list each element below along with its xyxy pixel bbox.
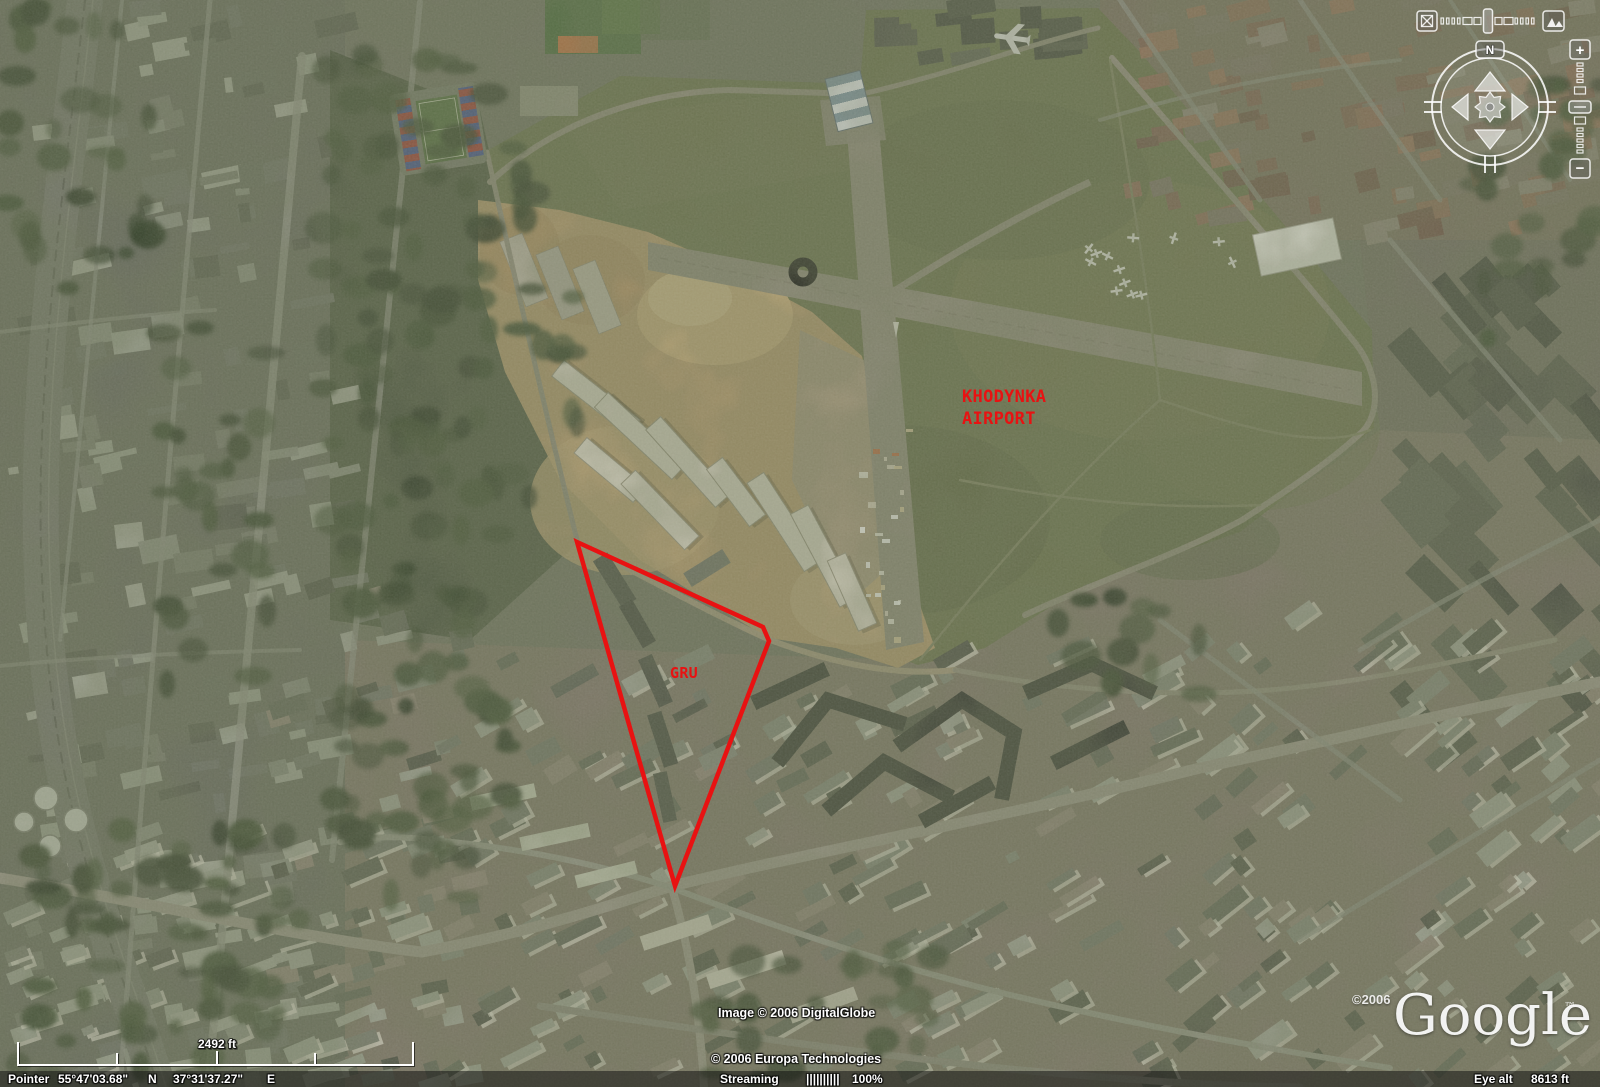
eye-altitude-value: 8613 ft — [1531, 1071, 1569, 1087]
streaming-percent: 100% — [852, 1071, 883, 1087]
pointer-latitude: 55°47'03.68" — [58, 1071, 128, 1087]
status-bar: Pointer 55°47'03.68" N 37°31'37.27" E St… — [0, 1071, 1600, 1087]
google-earth-viewport: KHODYNKA AIRPORT GRU 2492 ft — [0, 0, 1600, 1087]
pointer-label: Pointer — [8, 1071, 49, 1087]
image-credit: Image © 2006 DigitalGlobe — [718, 1006, 875, 1020]
satellite-map[interactable]: KHODYNKA AIRPORT GRU 2492 ft — [0, 0, 1600, 1087]
logo-copyright-year: ©2006 — [1352, 992, 1391, 1007]
google-logo: Google — [1393, 991, 1592, 1051]
map-credit: © 2006 Europa Technologies — [711, 1052, 881, 1066]
gru-label: GRU — [670, 664, 698, 682]
longitude-hemisphere: E — [267, 1071, 275, 1087]
airport-label-line1: KHODYNKA — [962, 387, 1046, 407]
eye-altitude-label: Eye alt — [1474, 1071, 1513, 1087]
logo-trademark: ™ — [1564, 1000, 1576, 1014]
terrain-grain — [0, 0, 1600, 1087]
latitude-hemisphere: N — [148, 1071, 157, 1087]
airport-label-line2: AIRPORT — [962, 409, 1036, 429]
scale-distance-label: 2492 ft — [198, 1037, 236, 1051]
streaming-label: Streaming — [720, 1071, 779, 1087]
streaming-progress-bars: |||||||||| — [806, 1071, 840, 1087]
pointer-longitude: 37°31'37.27" — [173, 1071, 243, 1087]
